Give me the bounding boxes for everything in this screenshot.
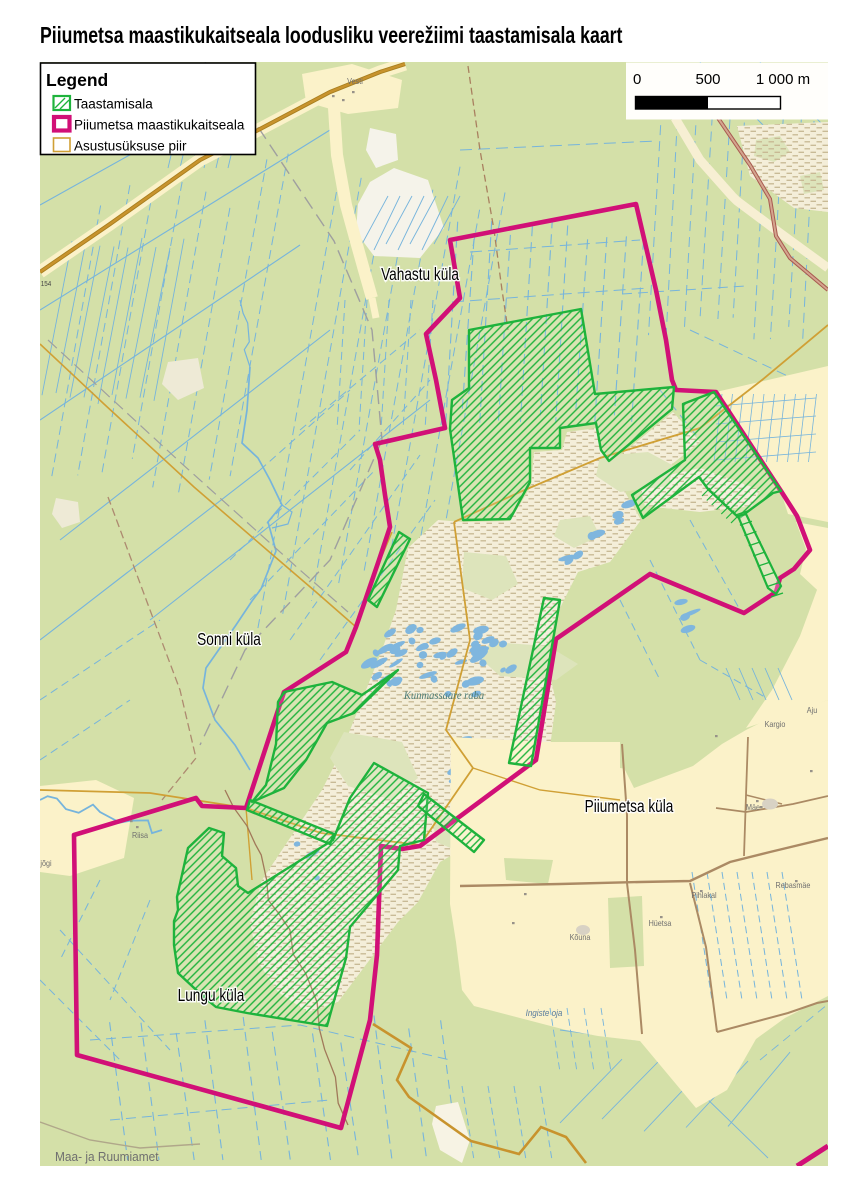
svg-text:Vesti: Vesti (347, 76, 363, 86)
svg-text:Aju: Aju (807, 705, 817, 715)
svg-text:Riisa: Riisa (132, 830, 149, 840)
svg-text:154: 154 (41, 281, 52, 288)
svg-text:Lungu küla: Lungu küla (178, 987, 245, 1006)
svg-text:0: 0 (633, 71, 641, 88)
svg-text:Legend: Legend (46, 70, 108, 90)
svg-text:Kunmassaare raba: Kunmassaare raba (403, 689, 485, 702)
svg-text:Rebasmäe: Rebasmäe (776, 880, 811, 890)
svg-text:Piiumetsa küla: Piiumetsa küla (585, 798, 674, 817)
svg-text:Asustusüksuse piir: Asustusüksuse piir (74, 139, 187, 154)
svg-text:Kargio: Kargio (765, 719, 786, 729)
svg-text:Ingiste oja: Ingiste oja (526, 1008, 563, 1019)
svg-text:Piiumetsa maastikukaitseala: Piiumetsa maastikukaitseala (74, 118, 245, 133)
svg-text:Soo: Soo (837, 894, 849, 904)
svg-text:Sonni küla: Sonni küla (197, 631, 261, 650)
svg-text:1 000 m: 1 000 m (756, 71, 810, 88)
svg-text:jõgi: jõgi (39, 858, 51, 868)
svg-text:Kõuna: Kõuna (570, 932, 591, 942)
svg-text:Taastamisala: Taastamisala (74, 97, 153, 112)
svg-text:Mäe: Mäe (746, 802, 761, 812)
svg-text:Vahastu küla: Vahastu küla (381, 266, 459, 285)
svg-text:500: 500 (695, 71, 720, 88)
svg-text:Maa- ja Ruumiamet: Maa- ja Ruumiamet (55, 1150, 159, 1164)
svg-text:Piiumetsa maastikukaitseala lo: Piiumetsa maastikukaitseala loodusliku v… (40, 23, 623, 49)
svg-text:Pihlakal: Pihlakal (691, 890, 716, 900)
svg-text:Hüetsa: Hüetsa (649, 918, 672, 928)
